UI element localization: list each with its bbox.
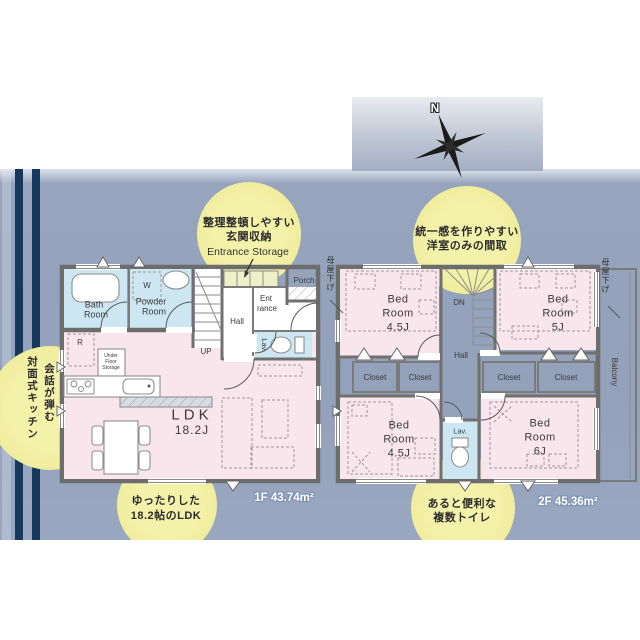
toilet1 xyxy=(271,337,291,353)
closet4-label: Closet xyxy=(555,374,578,382)
porch-label: Porch xyxy=(294,277,315,285)
gutter-mark xyxy=(521,481,535,491)
bedroom3-label-1: Bed xyxy=(388,421,409,432)
callout-entrance-en: Entrance Storage xyxy=(207,246,289,258)
callout-ldk-jp2: 18.2帖のLDK xyxy=(131,507,202,523)
bedroom3-label-3: 4.5J xyxy=(388,449,411,460)
vent-triangle xyxy=(133,257,145,267)
toilet2-tank xyxy=(452,438,468,447)
eaves-label-right: 母屋下げ xyxy=(601,258,609,294)
hall1-label: Hall xyxy=(230,318,244,326)
hall2-label: Hall xyxy=(454,352,468,360)
callout-entrance-jp2: 玄関収納 xyxy=(226,228,272,244)
washer-label: W xyxy=(143,282,151,290)
toilet2 xyxy=(452,447,469,467)
closet2-label: Closet xyxy=(409,374,432,382)
balcony-label: Balcony xyxy=(610,358,618,386)
powder-room-label-2: Room xyxy=(142,308,166,317)
entrance-label-1: Ent xyxy=(260,295,272,303)
up-label: UP xyxy=(200,348,211,356)
under-floor-label-3: Storage xyxy=(102,365,120,371)
stairs2-treads xyxy=(445,269,495,345)
entrance-label-2: rance xyxy=(257,305,277,313)
dining-table xyxy=(104,421,138,474)
vent-triangle xyxy=(522,257,534,267)
floorplan-linework xyxy=(0,0,640,640)
callout-kitchen-col2: 対面式キッチン xyxy=(25,356,40,440)
floor1-plan xyxy=(57,257,321,491)
bedroom1-label-1: Bed xyxy=(387,295,408,306)
closet3-label: Closet xyxy=(498,374,521,382)
entrance-storage-area xyxy=(224,271,278,287)
eaves-label-left: 母屋下げ xyxy=(326,256,334,292)
gutter-mark xyxy=(458,481,472,491)
bedroom4-label-3: 6J xyxy=(534,447,547,458)
bath-room-label-2: Room xyxy=(84,311,108,320)
fridge-label: R xyxy=(77,339,83,347)
lav1-label: Lav. xyxy=(260,338,268,352)
gutter-mark xyxy=(226,481,240,491)
north-label: N xyxy=(431,101,440,115)
powder-room-label-1: Powder xyxy=(136,298,167,307)
floor1-area-label: 1F 43.74m² xyxy=(254,492,313,504)
floor2-area-label: 2F 45.36m² xyxy=(538,496,597,508)
ldk-size-label: 18.2J xyxy=(175,424,209,436)
bedroom2-label-1: Bed xyxy=(547,295,568,306)
powder-sink xyxy=(163,271,189,289)
stairs1-area xyxy=(195,269,222,348)
callout-uniform-jp2: 洋室のみの間取 xyxy=(427,237,508,253)
bedroom2-label-2: Room xyxy=(542,309,573,320)
bedroom1-label-2: Room xyxy=(382,309,413,320)
ldk-label: LDK xyxy=(171,408,212,423)
floorplan-page: N 整理整頓しやすい 玄関収納 Entrance Storage 統一感を作りや… xyxy=(0,0,640,640)
dn-label: DN xyxy=(453,299,465,307)
bedroom4-label-2: Room xyxy=(524,433,555,444)
compass-icon xyxy=(403,101,498,191)
callout-kitchen-col1: 会話が弾む xyxy=(42,363,57,423)
closet1-label: Closet xyxy=(364,374,387,382)
bath-room-label-1: Bath xyxy=(85,301,104,310)
bedroom4-label-1: Bed xyxy=(529,419,550,430)
bedroom3-label-2: Room xyxy=(383,435,414,446)
callout-toilet-jp2: 複数トイレ xyxy=(433,509,491,525)
callout-ldk-jp1: ゆったりした xyxy=(132,492,201,508)
bedroom1-label-3: 4.5J xyxy=(387,323,410,334)
lav2-label: Lav. xyxy=(453,427,467,435)
vent-triangle xyxy=(97,257,109,267)
bedroom2-label-3: 5J xyxy=(552,323,565,334)
bathtub xyxy=(72,274,119,302)
